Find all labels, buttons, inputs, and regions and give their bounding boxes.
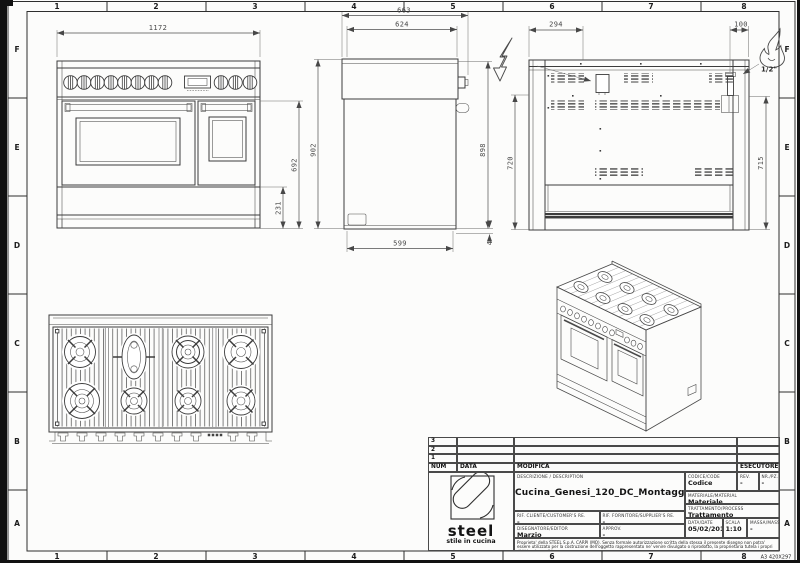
date-value: 05/02/2016 [686,525,722,533]
grid-col-label: 6 [549,2,554,11]
scale-value: 1:10 [724,525,747,533]
revision-row-num: 3 [428,437,457,446]
grid-row-label: C [14,339,20,348]
revision-header-num: NUM [428,463,457,472]
scan-edge-bottom [0,560,800,563]
nr-label: NR./PZ. [760,473,780,479]
flame-icon [760,29,785,68]
approval-cell: APPROV. - [600,524,686,538]
grid-row-label: E [14,143,19,152]
dim-side-top-depth: 624 [395,21,409,29]
supplier-ref-cell: RIF. FORNITORE/SUPPLIER'S RE. - [600,511,686,525]
date-cell: DATA/DATE 05/02/2016 [685,518,723,538]
dim-side-back-height: 898 [479,143,487,157]
steel-logo-emblem [429,473,514,525]
grid-col-label: 4 [351,2,356,11]
revision-header-modifica: MODIFICA [514,463,737,472]
dim-back-junction-x: 294 [549,21,563,29]
top-view-knob-row [49,432,272,444]
front-display [185,76,211,88]
burner [62,381,102,421]
process-cell: TRATTAMENTO/PROCESS Trattamento [685,504,780,518]
front-left-oven-door [62,101,195,185]
grid-row-label: C [784,339,790,348]
burner [170,334,206,370]
grid-row-label: D [784,241,790,250]
code-value: Codice [686,479,736,487]
scale-cell: SCALA 1:10 [723,518,748,538]
revision-header-data: DATA [457,463,514,472]
grid-col-label: 5 [450,2,455,11]
isometric-view [557,261,701,431]
nr-cell: NR./PZ. - [759,472,781,491]
gas-size-label: 1/2" [761,66,777,74]
junction-box [596,75,609,93]
grid-col-label: 2 [153,2,158,11]
grid-row-label: E [784,143,789,152]
drawing-title: Cucina_Genesi_120_DC_Montaggio [515,488,684,498]
scan-corner-topleft [0,0,13,6]
nr-value: - [760,479,780,487]
mass-label: MASSA/MASS kg [748,519,779,525]
code-cell: CODICE/CODE Codice [685,472,737,491]
legal-cell: Proprieta' della STEEL S.p.A. CARPI (MO)… [514,538,780,552]
logo-tagline: stile in cucina [429,538,513,545]
grid-row-label: D [14,241,20,250]
description-cell: DESCRIZIONE / DESCRIPTION Cucina_Genesi_… [514,472,685,511]
dim-front-door-height: 692 [291,158,299,172]
logo-cell: steel stile in cucina [428,472,514,552]
side-view: 663 624 902 898 4 599 [310,7,495,253]
dim-side-foot-gap: 4 [486,241,494,246]
dim-back-right-height: 715 [757,156,765,170]
grid-row-label: B [784,437,790,446]
grid-row-label: F [14,45,19,54]
revision-header-esecutore: ESECUTORE [737,463,780,472]
grid-col-label: 8 [741,2,746,11]
description-label: DESCRIZIONE / DESCRIPTION [515,473,684,479]
scan-edge-right [797,0,800,563]
burner [222,333,260,371]
mass-value: - [748,525,779,533]
revision-row-num: 1 [428,454,457,463]
title-block: 3 2 1 NUM DATA MODIFICA ESECUTORE steel … [428,437,780,551]
grid-row-label: B [14,437,20,446]
legal-text: Proprieta' della STEEL S.p.A. CARPI (MO)… [515,539,779,552]
burner [119,386,149,416]
customer-ref-cell: RIF. CLIENTE/CUSTOMER'S RE. - [514,511,600,525]
grid-row-label: A [784,519,790,528]
drawing-sheet: 1 2 3 4 5 6 7 8 1 2 3 4 5 6 7 8 A3 420X2… [0,0,800,563]
dim-back-left-height: 720 [507,156,515,170]
dim-front-base-height: 231 [275,201,283,215]
dim-front-width: 1172 [149,24,167,32]
editor-cell: DISEGNATORE/EDITOR Marzio [514,524,600,538]
dim-side-base-depth: 599 [393,240,407,248]
burner [173,386,203,416]
back-view: 294 100 720 715 1/2" [507,21,785,231]
grid-row-label: F [784,45,789,54]
lightning-icon [494,38,513,81]
grid-col-label: 7 [648,2,653,11]
material-cell: MATERIALE/MATERIAL Materiale [685,491,780,505]
dim-side-depth: 663 [397,7,411,15]
top-view [49,315,272,444]
front-view: 1172 231 692 [57,24,303,229]
supplier-ref-label: RIF. FORNITORE/SUPPLIER'S RE. [601,512,685,518]
grid-row-label: A [14,519,20,528]
scan-edge-left [0,0,7,563]
rev-cell: REV. - [737,472,759,491]
rev-value: - [738,479,758,487]
burner [225,385,257,417]
revision-row-num: 2 [428,446,457,455]
logo-name: steel [429,525,513,538]
grid-col-label: 1 [54,2,59,11]
mass-cell: MASSA/MASS kg - [747,518,780,538]
burner [62,334,98,370]
dim-side-height: 902 [310,143,318,157]
dim-back-gas-x: 100 [734,21,748,29]
grid-col-label: 3 [252,2,257,11]
